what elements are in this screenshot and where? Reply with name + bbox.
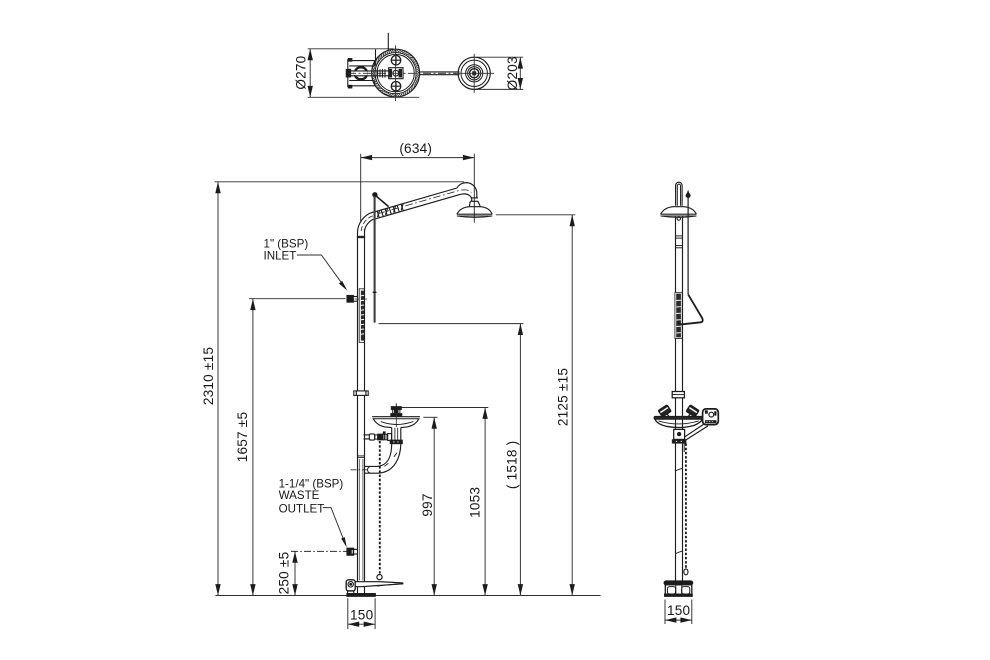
svg-text:WASTE: WASTE xyxy=(279,489,320,502)
svg-text:2310 ±15: 2310 ±15 xyxy=(201,347,216,405)
svg-text:Ø270: Ø270 xyxy=(294,55,309,89)
svg-text:1657 ±5: 1657 ±5 xyxy=(235,412,250,462)
svg-text:Ø203: Ø203 xyxy=(505,56,520,90)
svg-text:INLET: INLET xyxy=(264,249,297,262)
svg-text:2125 ±15: 2125 ±15 xyxy=(555,368,570,426)
svg-text:OUTLET: OUTLET xyxy=(279,503,325,516)
svg-text:150: 150 xyxy=(667,603,691,618)
svg-text:997: 997 xyxy=(420,493,435,516)
svg-text:1053: 1053 xyxy=(468,487,483,518)
svg-text:(634): (634) xyxy=(399,141,432,156)
svg-text:( 1518 ): ( 1518 ) xyxy=(504,441,519,489)
svg-text:150: 150 xyxy=(350,608,374,623)
svg-text:250 ±5: 250 ±5 xyxy=(277,552,292,595)
